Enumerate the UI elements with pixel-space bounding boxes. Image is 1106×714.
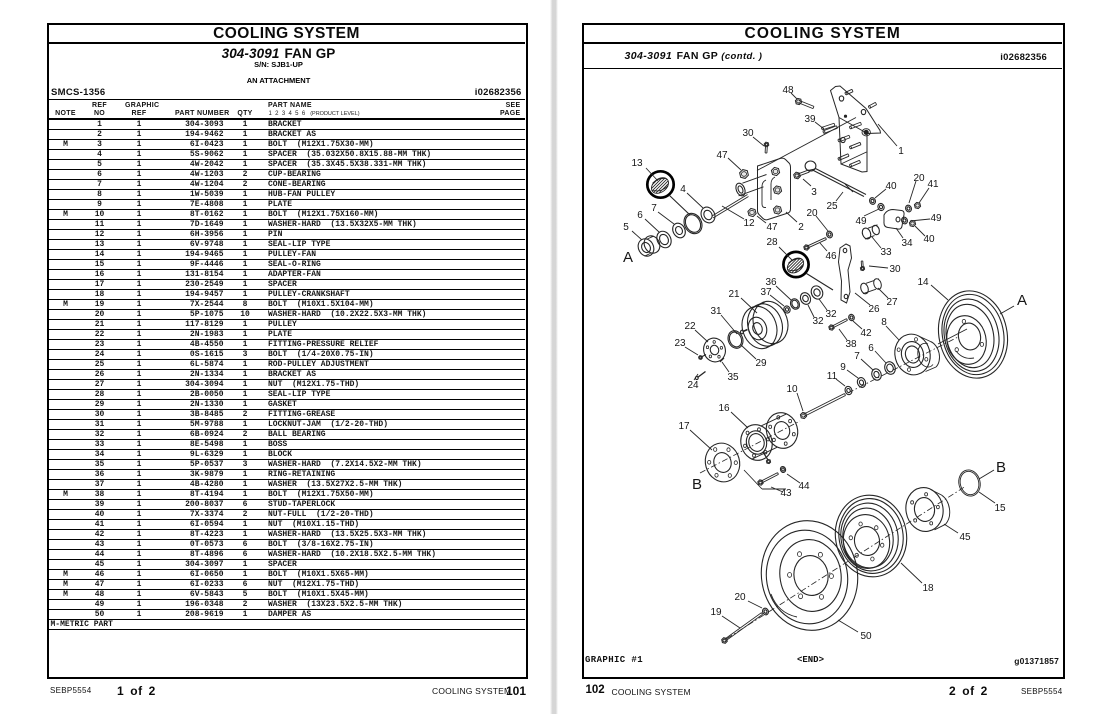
svg-text:3: 3 bbox=[811, 187, 817, 198]
svg-text:20: 20 bbox=[913, 173, 925, 184]
svg-text:15: 15 bbox=[994, 503, 1006, 514]
svg-text:7: 7 bbox=[651, 203, 657, 214]
svg-text:23: 23 bbox=[674, 338, 686, 349]
svg-text:34: 34 bbox=[901, 238, 913, 249]
svg-text:13: 13 bbox=[631, 158, 643, 169]
svg-text:7: 7 bbox=[854, 351, 860, 362]
svg-text:49: 49 bbox=[930, 213, 942, 224]
svg-text:49: 49 bbox=[855, 216, 867, 227]
svg-text:47: 47 bbox=[716, 150, 728, 161]
svg-text:5: 5 bbox=[623, 222, 629, 233]
svg-text:25: 25 bbox=[826, 201, 838, 212]
svg-text:30: 30 bbox=[889, 264, 901, 275]
svg-text:42: 42 bbox=[860, 328, 872, 339]
svg-text:28: 28 bbox=[766, 237, 778, 248]
svg-text:8: 8 bbox=[881, 317, 887, 328]
svg-text:40: 40 bbox=[885, 181, 897, 192]
svg-text:A: A bbox=[623, 249, 633, 266]
svg-text:18: 18 bbox=[922, 583, 934, 594]
svg-text:33: 33 bbox=[880, 247, 892, 258]
svg-text:41: 41 bbox=[927, 179, 939, 190]
svg-text:20: 20 bbox=[734, 592, 746, 603]
svg-text:24: 24 bbox=[687, 380, 699, 391]
svg-text:B: B bbox=[996, 459, 1006, 476]
svg-text:10: 10 bbox=[786, 384, 798, 395]
svg-text:1: 1 bbox=[898, 146, 904, 157]
svg-text:44: 44 bbox=[798, 481, 810, 492]
svg-text:6: 6 bbox=[637, 210, 643, 221]
svg-text:37: 37 bbox=[760, 287, 772, 298]
svg-text:39: 39 bbox=[804, 114, 816, 125]
svg-text:20: 20 bbox=[806, 208, 818, 219]
svg-text:2: 2 bbox=[798, 222, 804, 233]
svg-text:46: 46 bbox=[825, 251, 837, 262]
svg-text:A: A bbox=[1017, 292, 1027, 309]
svg-text:B: B bbox=[692, 476, 702, 493]
svg-text:35: 35 bbox=[727, 372, 739, 383]
svg-text:32: 32 bbox=[825, 309, 837, 320]
svg-text:43: 43 bbox=[780, 488, 792, 499]
svg-text:50: 50 bbox=[860, 631, 872, 642]
svg-text:9: 9 bbox=[840, 362, 846, 373]
svg-text:30: 30 bbox=[742, 128, 754, 139]
svg-text:40: 40 bbox=[923, 234, 935, 245]
svg-text:19: 19 bbox=[710, 607, 722, 618]
svg-text:31: 31 bbox=[710, 306, 722, 317]
svg-text:48: 48 bbox=[782, 85, 794, 96]
svg-text:6: 6 bbox=[868, 343, 874, 354]
svg-text:12: 12 bbox=[743, 218, 755, 229]
svg-text:17: 17 bbox=[678, 421, 690, 432]
svg-text:29: 29 bbox=[755, 358, 767, 369]
svg-text:38: 38 bbox=[845, 339, 857, 350]
svg-text:32: 32 bbox=[812, 316, 824, 327]
svg-text:27: 27 bbox=[886, 297, 898, 308]
svg-text:21: 21 bbox=[728, 289, 740, 300]
svg-text:22: 22 bbox=[684, 321, 696, 332]
svg-text:14: 14 bbox=[917, 277, 929, 288]
svg-text:4: 4 bbox=[680, 184, 686, 195]
svg-text:16: 16 bbox=[718, 403, 730, 414]
svg-text:11: 11 bbox=[827, 371, 838, 382]
svg-text:45: 45 bbox=[959, 532, 971, 543]
svg-text:26: 26 bbox=[868, 304, 880, 315]
svg-text:47: 47 bbox=[766, 222, 778, 233]
